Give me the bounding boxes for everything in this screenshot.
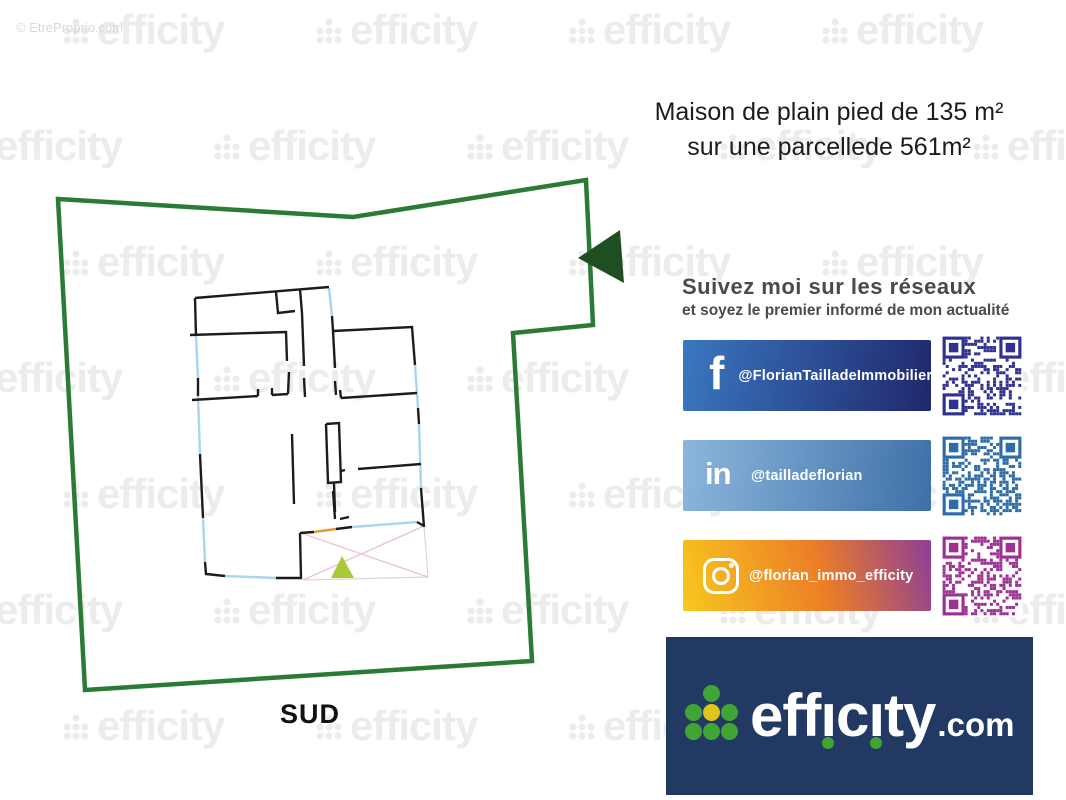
terrace-door <box>314 529 336 532</box>
floor-plan <box>190 287 428 580</box>
brand-tld: .com <box>937 706 1014 744</box>
social-heading-block: Suivez moi sur les réseaux et soyez le p… <box>682 274 1032 320</box>
brand-dot <box>703 723 720 740</box>
brand-dot <box>685 723 702 740</box>
qr-code-instagram <box>941 535 1023 617</box>
listing-title: Maison de plain pied de 135 m² sur une p… <box>640 95 1018 165</box>
orientation-label: SUD <box>245 699 375 730</box>
terrace-cross <box>301 526 428 580</box>
direction-arrow-icon <box>578 230 624 283</box>
brand-wordmark: effıcıty.com <box>750 637 1014 795</box>
linkedin-handle: @tailladeflorian <box>751 468 863 484</box>
brand-dot <box>721 704 738 721</box>
brand-name: effıcıty <box>750 637 935 795</box>
qr-code-linkedin <box>941 435 1023 517</box>
qr-code-facebook <box>941 335 1023 417</box>
instagram-handle: @florian_immo_efficity <box>749 568 913 584</box>
linkedin-icon: in <box>705 456 745 492</box>
brand-dot <box>685 704 702 721</box>
social-heading: Suivez moi sur les réseaux <box>682 274 1032 300</box>
brand-dot <box>703 685 720 702</box>
title-line-2: sur une parcellede 561m² <box>640 130 1018 165</box>
facebook-handle: @FlorianTailladeImmobilier <box>738 368 932 384</box>
facebook-icon: f <box>709 346 724 400</box>
brand-dot-yellow <box>703 704 720 721</box>
brand-dot <box>721 723 738 740</box>
copyright-watermark: © EtreProprio.com <box>16 20 123 35</box>
facebook-banner: f @FlorianTailladeImmobilier <box>683 340 931 411</box>
brand-logo-block: effıcıty.com <box>666 637 1033 795</box>
flyer-page: efficityefficityefficityefficityefficity… <box>0 0 1066 800</box>
instagram-banner: @florian_immo_efficity <box>683 540 931 611</box>
title-line-1: Maison de plain pied de 135 m² <box>640 95 1018 130</box>
linkedin-banner: in @tailladeflorian <box>683 440 931 511</box>
instagram-icon <box>703 558 739 594</box>
social-subheading: et soyez le premier informé de mon actua… <box>682 302 1032 320</box>
